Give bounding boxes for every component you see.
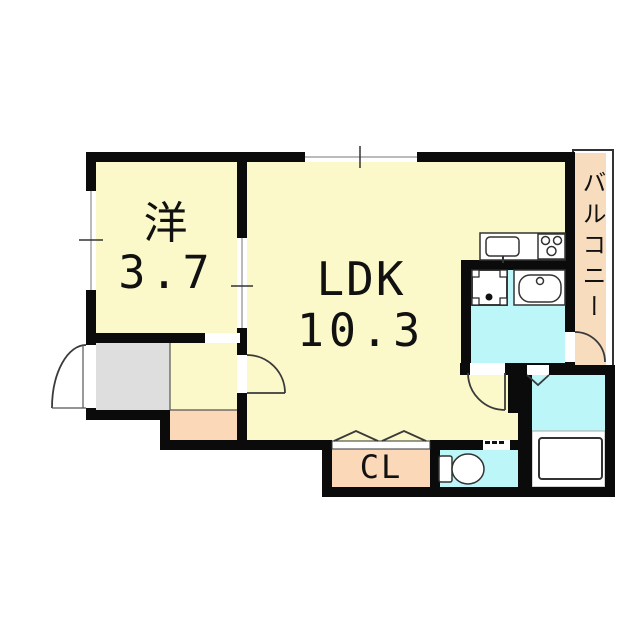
hallway-floor bbox=[170, 343, 237, 410]
wall-pillar bbox=[508, 371, 518, 413]
ldk-doorway bbox=[237, 355, 247, 393]
wall-right-bathroom bbox=[605, 375, 615, 497]
entrance-genkan-floor bbox=[96, 343, 170, 410]
wall-right-stub bbox=[565, 362, 575, 375]
wall-bathroom-left bbox=[518, 365, 532, 490]
ldk-size: 10.3 bbox=[247, 308, 475, 353]
wall-top-right bbox=[417, 152, 575, 162]
western-room-doorway bbox=[205, 333, 240, 343]
washer-pan-icon bbox=[472, 270, 507, 305]
wall-right-main bbox=[565, 152, 575, 332]
entrance-doorway bbox=[86, 345, 96, 408]
toilet-icon bbox=[439, 454, 484, 484]
wall-toilet-top-1 bbox=[440, 440, 483, 450]
wall-washroom-top bbox=[461, 260, 575, 270]
toilet-door bbox=[483, 440, 510, 450]
vanity-sink-icon bbox=[514, 270, 565, 305]
shoe-cabinet bbox=[170, 410, 237, 440]
western-room-label: 洋 bbox=[96, 202, 237, 246]
balcony-doorway bbox=[565, 332, 575, 362]
stove-icon bbox=[538, 234, 565, 259]
kitchen-counter bbox=[480, 233, 565, 263]
western-room-size: 3.7 bbox=[96, 250, 237, 295]
entrance-door-swing bbox=[52, 345, 86, 408]
wall-toilet-top-2 bbox=[510, 440, 518, 450]
wall-partition-1 bbox=[237, 162, 247, 238]
wall-genkan-bottom bbox=[86, 410, 170, 420]
bathroom-floor bbox=[532, 375, 605, 431]
wall-western-bottom-1 bbox=[86, 333, 205, 343]
wall-top-left bbox=[86, 152, 305, 162]
wall-partition-3 bbox=[237, 393, 247, 443]
balcony-label: バルコニー bbox=[577, 170, 607, 380]
ldk-label: LDK bbox=[247, 256, 475, 302]
washroom-doorway bbox=[470, 363, 505, 375]
wall-bottom-right bbox=[322, 487, 615, 497]
kitchen-sink-icon bbox=[486, 237, 519, 256]
wall-left-1 bbox=[86, 162, 96, 191]
closet-label: CL bbox=[332, 451, 430, 483]
bathtub-icon bbox=[539, 438, 602, 479]
floorplan-canvas: 洋 3.7 LDK 10.3 CL バルコニー bbox=[0, 0, 640, 640]
